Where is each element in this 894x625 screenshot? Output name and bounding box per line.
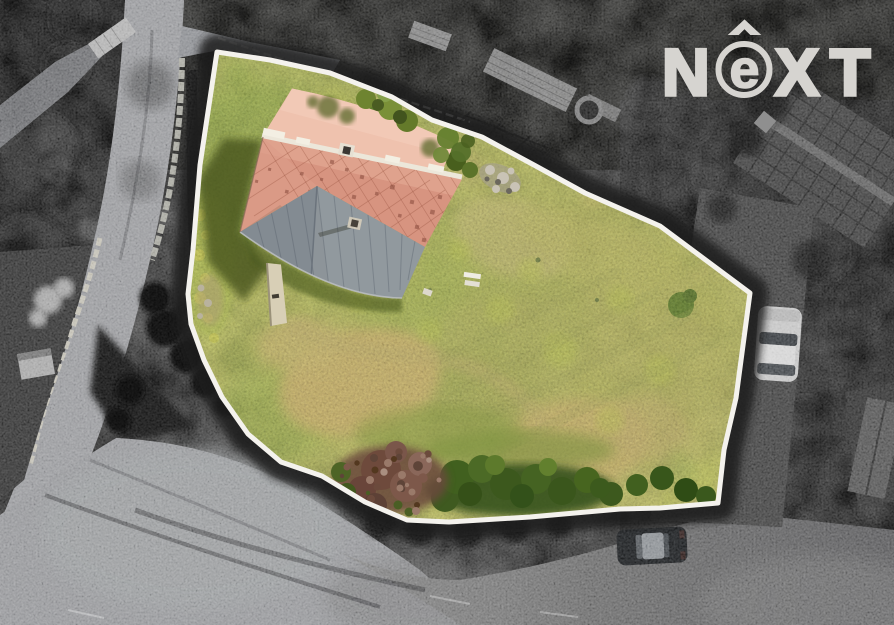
svg-text:X: X bbox=[775, 35, 819, 109]
svg-text:T: T bbox=[830, 35, 870, 109]
svg-text:N: N bbox=[662, 35, 710, 109]
svg-text:e: e bbox=[729, 40, 759, 100]
